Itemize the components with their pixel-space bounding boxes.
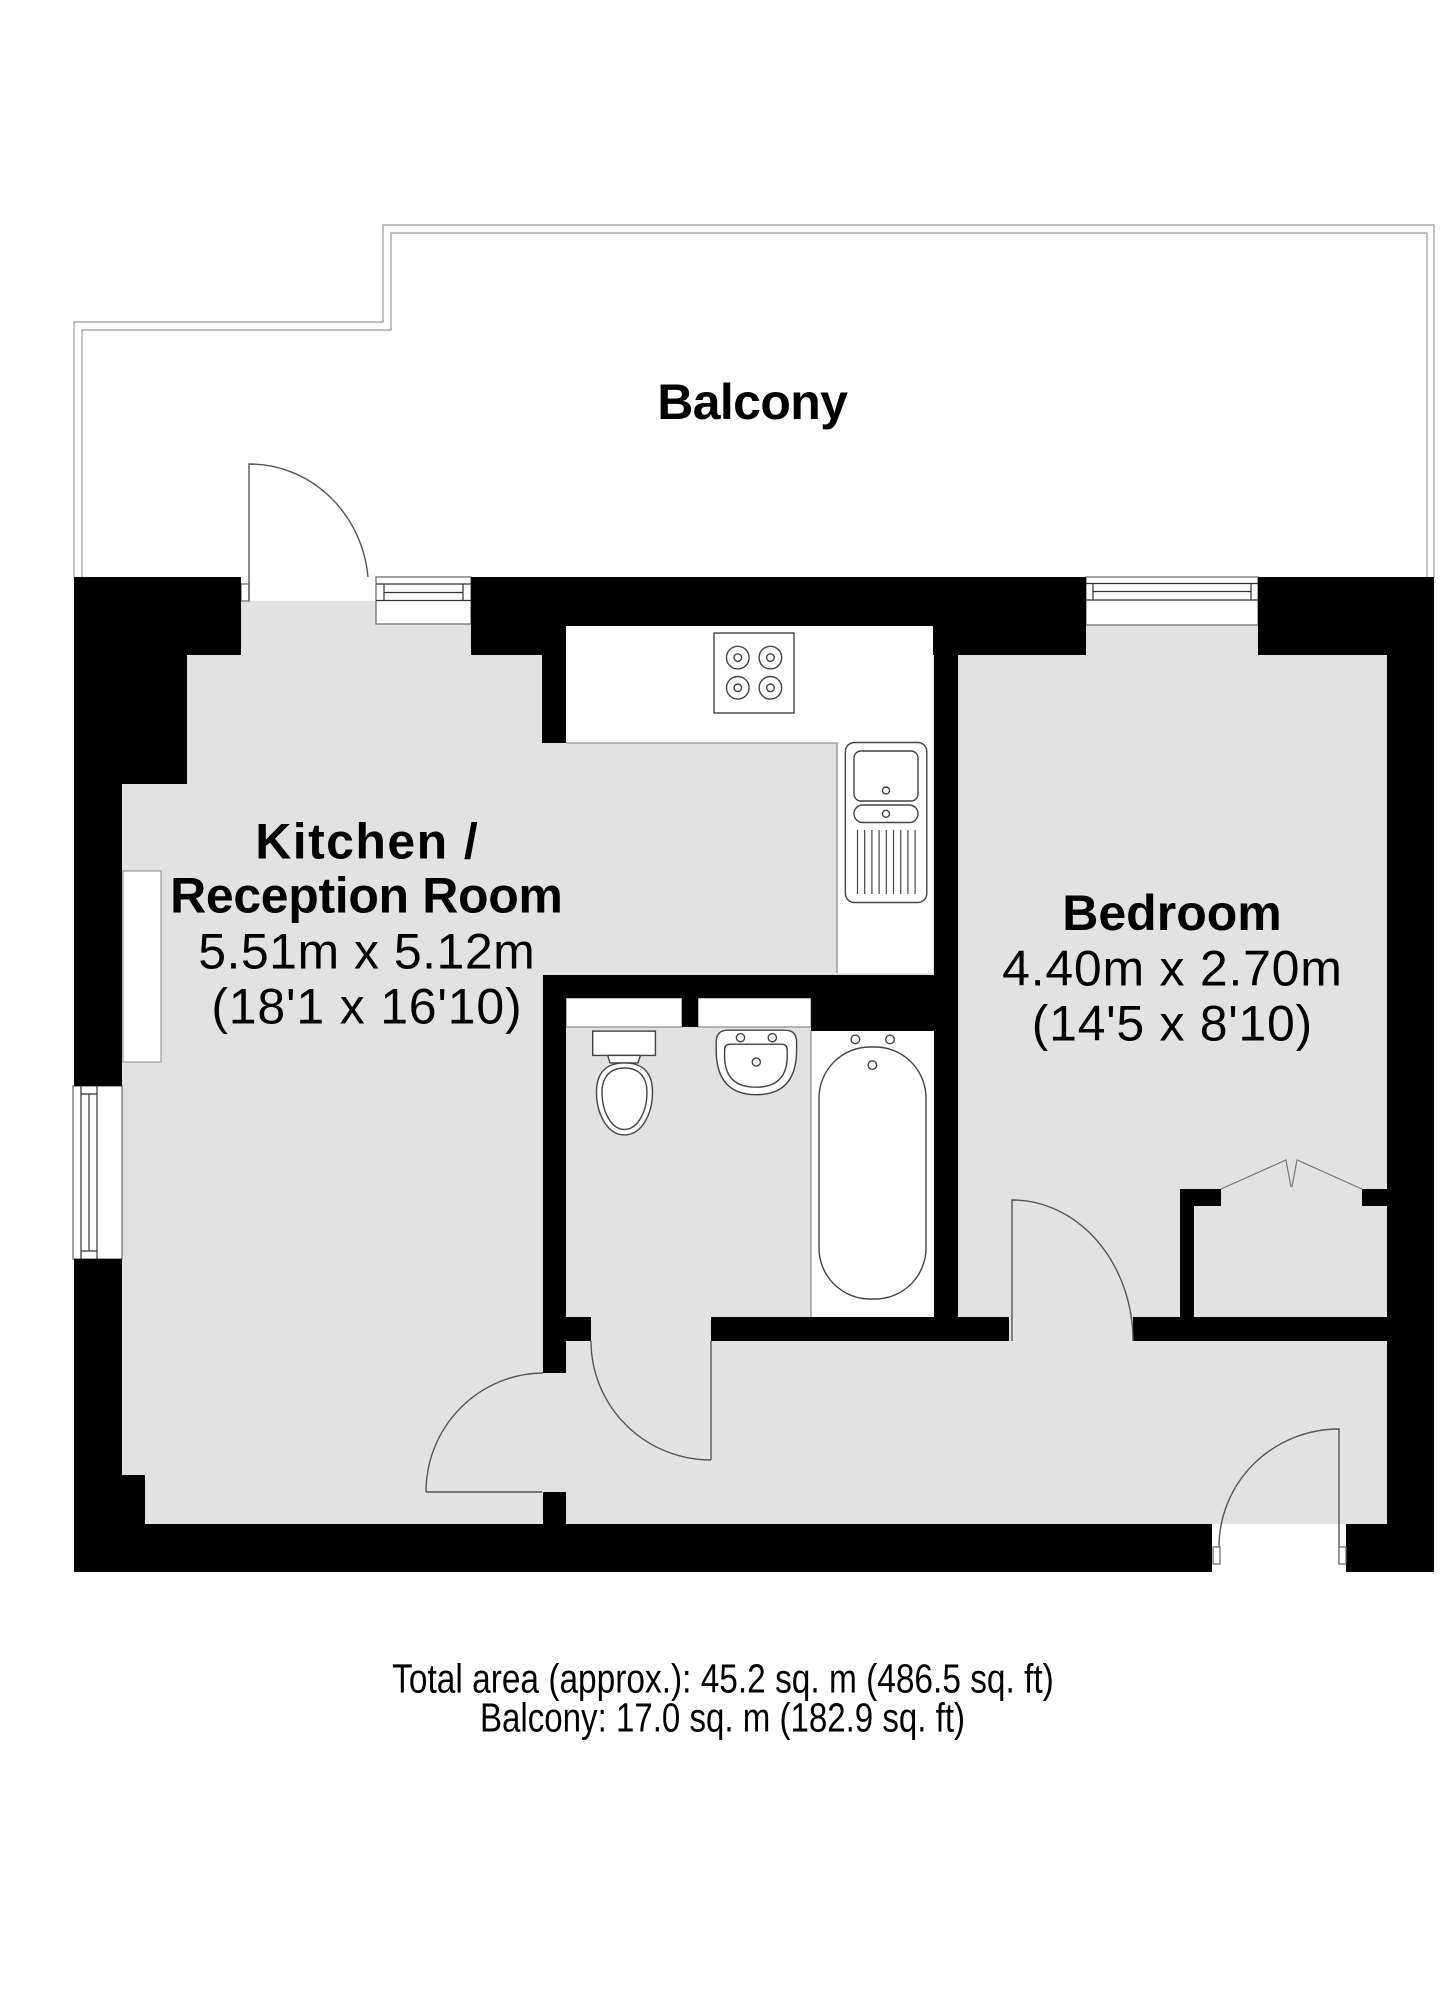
svg-text:(14'5 x 8'10): (14'5 x 8'10) bbox=[1032, 996, 1312, 1052]
svg-text:(18'1 x 16'10): (18'1 x 16'10) bbox=[211, 979, 521, 1035]
svg-text:Kitchen /: Kitchen / bbox=[255, 813, 478, 869]
svg-text:Balcony: Balcony bbox=[657, 374, 848, 430]
svg-text:5.51m x 5.12m: 5.51m x 5.12m bbox=[198, 924, 535, 980]
svg-text:Reception Room: Reception Room bbox=[170, 868, 563, 924]
svg-text:Bedroom: Bedroom bbox=[1062, 885, 1282, 941]
svg-text:Balcony: 17.0 sq. m (182.9 sq.: Balcony: 17.0 sq. m (182.9 sq. ft) bbox=[480, 1694, 965, 1740]
svg-text:4.40m x 2.70m: 4.40m x 2.70m bbox=[1002, 941, 1342, 997]
